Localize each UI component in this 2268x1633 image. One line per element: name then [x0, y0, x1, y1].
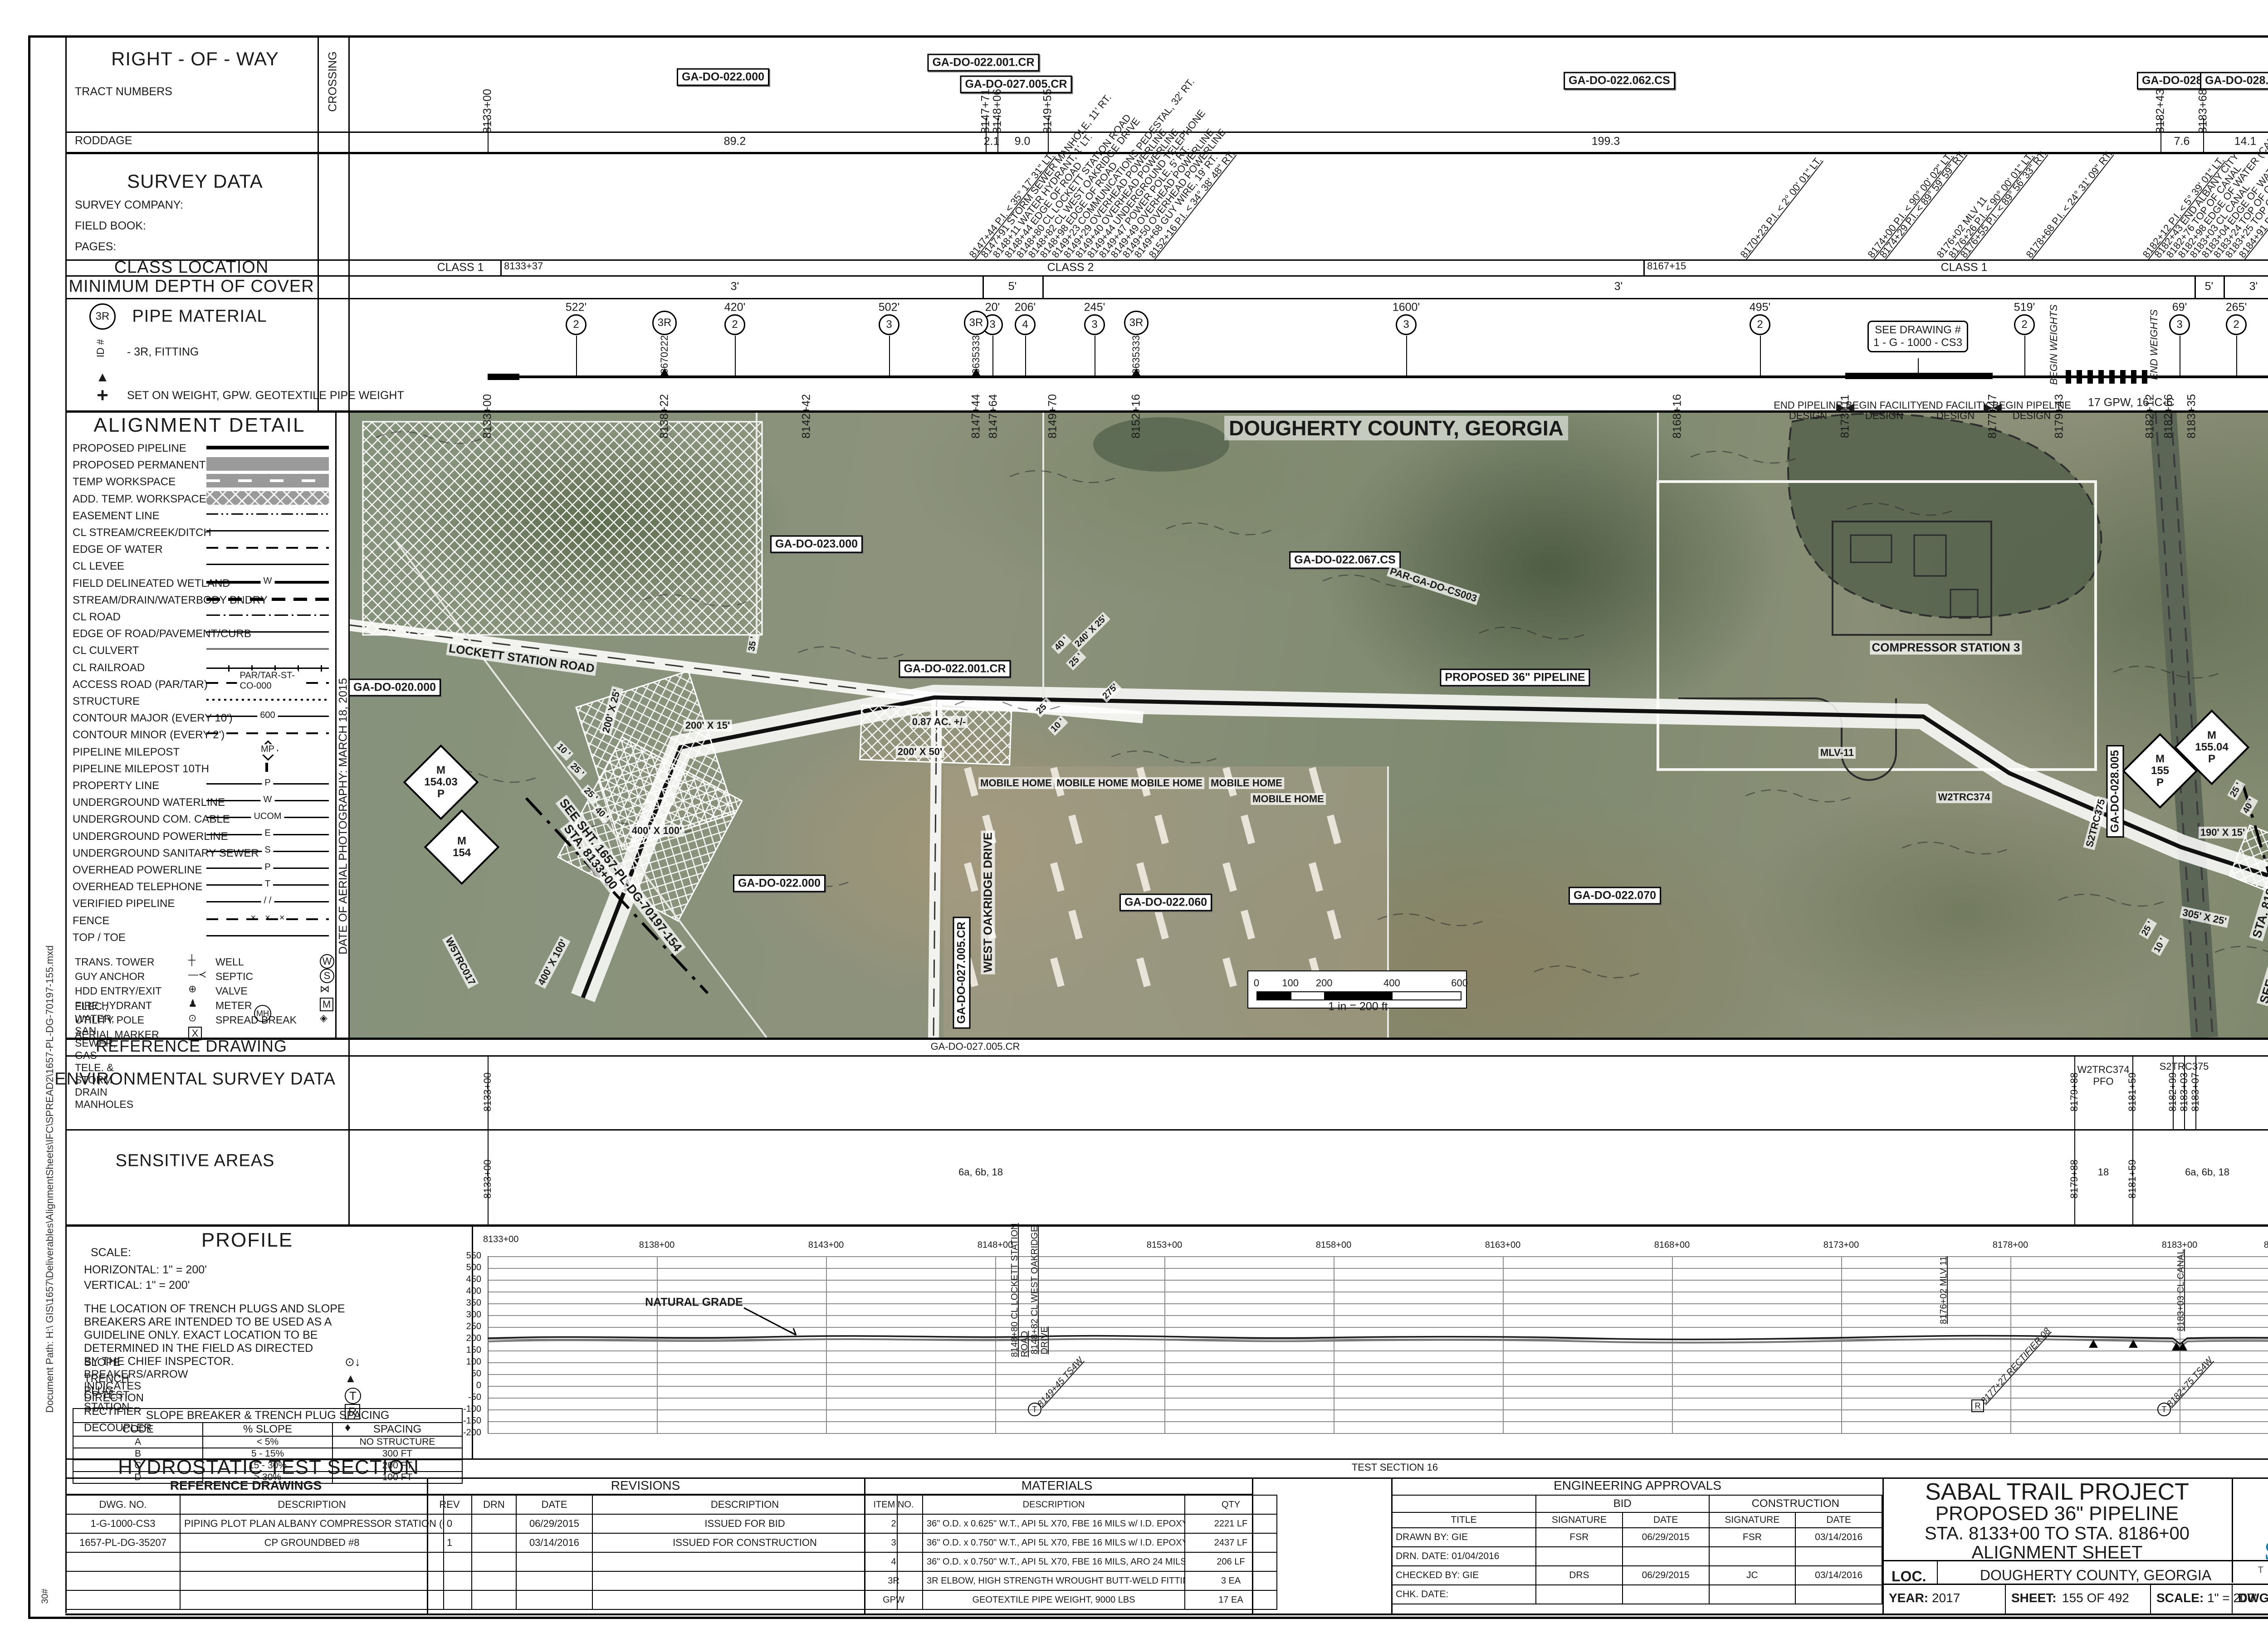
- rule-line: [1882, 1560, 2268, 1561]
- sensitive-area-value: 6a, 6b, 18: [958, 1166, 1003, 1178]
- approvals-cell: FSR: [1536, 1528, 1623, 1547]
- approvals-cell: [1536, 1585, 1623, 1604]
- map-tract-label: GA-DO-020.000: [348, 679, 441, 697]
- rule-line: [488, 1268, 2268, 1269]
- pipe-callout-length: 245': [1084, 301, 1105, 314]
- class-value: CLASS 1: [437, 261, 484, 274]
- reference-drawings-table-cell: CP GROUNDBED #8: [180, 1533, 444, 1552]
- legend-item-label: UNDERGROUND COM. CABLE: [73, 813, 230, 825]
- rule-line: [65, 1458, 2268, 1460]
- loc-value: DOUGHERTY COUNTY, GEORGIA: [1980, 1567, 2211, 1584]
- roddage-value: 199.3: [1592, 135, 1620, 148]
- legend-item-swatch: [206, 564, 329, 565]
- legend-item-swatch: × × ×: [206, 918, 329, 920]
- rule-line: [1025, 336, 1026, 375]
- legend-symbol: GUY ANCHOR—≺: [75, 970, 145, 983]
- project-title-line3: STA. 8133+00 TO STA. 8186+00: [1925, 1524, 2190, 1544]
- pipe-callout-id: 3: [2169, 314, 2190, 335]
- rule-line: [1042, 275, 1044, 298]
- approvals-col-header: SIGNATURE: [1536, 1512, 1623, 1528]
- county-title: DOUGHERTY COUNTY, GEORGIA: [1224, 416, 1568, 440]
- legend-item-swatch: MP: [206, 743, 329, 758]
- legend-item: CL LEVEE: [73, 560, 333, 577]
- materials-table-cell: 3 EA: [1185, 1571, 1277, 1590]
- pipe-station-label: 8149+70: [1046, 394, 1060, 439]
- map-tract-label: GA-DO-023.000: [770, 536, 863, 553]
- legend-item-label: CL CULVERT: [73, 644, 139, 657]
- legend-item: CL CULVERT: [73, 644, 333, 661]
- pipe-station-label: 8152+16: [1130, 394, 1143, 439]
- pipe-fitting-id: 3R: [964, 311, 988, 335]
- reference-drawings-table-cell: 1657-PL-DG-35207: [66, 1533, 180, 1552]
- legend-symbol-label: METER: [215, 999, 252, 1011]
- approvals-cell: [1536, 1547, 1623, 1566]
- legend-item-label: EDGE OF ROAD/PAVEMENT/CURB: [73, 628, 251, 640]
- rule-line: [488, 1398, 2268, 1399]
- legend-item-mark: PAR/TAR-ST-CO-000: [237, 670, 298, 691]
- titleblock-field-value: 2017: [1932, 1591, 1960, 1605]
- legend-item: TOP / TOE: [73, 931, 333, 948]
- spacing-table-cell: < 5%: [203, 1436, 332, 1448]
- legend-item-swatch: [206, 446, 329, 449]
- class-value: CLASS 1: [1941, 261, 1988, 274]
- tract-numbers-label: TRACT NUMBERS: [75, 85, 172, 98]
- rule-line: [2024, 336, 2025, 375]
- alignment-detail-title: ALIGNMENT DETAIL: [94, 414, 306, 437]
- revisions-table-cell: [472, 1533, 516, 1552]
- survey-company-label: SURVEY COMPANY:: [75, 199, 183, 212]
- map-annotation: 0.87 AC. +/-: [910, 716, 968, 728]
- approvals-cell: [1795, 1585, 1882, 1604]
- approvals-col-header: SIGNATURE: [1709, 1512, 1796, 1528]
- spacing-table-header: CODE: [73, 1423, 203, 1436]
- materials-table-cell: 3R: [865, 1571, 923, 1590]
- legend-symbol: METERM: [215, 999, 252, 1012]
- revisions-table-cell: [516, 1571, 592, 1590]
- profile-elevation-left: 100: [466, 1357, 481, 1367]
- profile-elevation-left: 200: [466, 1333, 481, 1344]
- rule-line: [826, 1256, 827, 1433]
- legend-item-label: ADD. TEMP. WORKSPACE: [73, 493, 206, 505]
- profile-station-label: 8158+00: [1316, 1240, 1351, 1251]
- legend-item: PROPOSED PERMANENT EASEMENT: [73, 459, 333, 476]
- legend-item: FENCE× × ×: [73, 915, 333, 931]
- titleblock-field-label: DWG.: [2238, 1591, 2268, 1605]
- legend-symbol-label: SEPTIC: [215, 970, 253, 982]
- profile-station-label: 8138+00: [639, 1240, 675, 1251]
- legend-item-swatch: [206, 547, 329, 549]
- materials-table-cell: 2437 LF: [1185, 1533, 1277, 1552]
- legend-item: STREAM/DRAIN/WATERBODY BNDRY: [73, 594, 333, 611]
- pipe-callout-length: 522': [566, 301, 587, 314]
- roddage-value: 7.6: [2174, 135, 2190, 148]
- design-note-left: END PIPELINE DESIGN: [1774, 400, 1843, 421]
- profile-elevation-left: 0: [476, 1380, 481, 1391]
- legend-item-swatch: [206, 935, 329, 936]
- approvals-cell: 06/29/2015: [1623, 1566, 1709, 1585]
- rule-line: [488, 1421, 2268, 1422]
- approvals-cell: 03/14/2016: [1795, 1528, 1882, 1547]
- legend-symbol-label: TRANS. TOWER: [75, 956, 155, 968]
- rule-line: [488, 1409, 2268, 1410]
- revisions-table-cell: 0: [427, 1514, 472, 1533]
- legend-symbol-glyph: ⊙: [188, 1012, 196, 1024]
- legend-item-mark: W: [261, 576, 275, 586]
- revisions-table-cell: [427, 1552, 472, 1571]
- legend-item: EDGE OF WATER: [73, 543, 333, 560]
- legend-item-swatch: [206, 732, 329, 734]
- rule-line: [488, 375, 2268, 378]
- legend-item: UNDERGROUND COM. CABLEUCOM: [73, 813, 333, 830]
- map-tract-label: GA-DO-022.000: [733, 875, 826, 892]
- legend-symbol: VALVE⋈: [215, 985, 248, 997]
- pipe-3r-symbol: 3R: [89, 303, 116, 330]
- scalebar-segment: [1290, 991, 1326, 1000]
- begin-weights-label: BEGIN WEIGHTS: [2048, 304, 2060, 385]
- scalebar-segment: [1256, 991, 1292, 1000]
- revisions-table-cell: [592, 1552, 897, 1571]
- legend-item-swatch: W: [206, 581, 329, 584]
- pipe-station-label: 8182+12: [2144, 394, 2157, 439]
- legend-item-swatch: [206, 631, 329, 633]
- revisions-table-cell: DESCRIPTION: [592, 1495, 897, 1514]
- map-tract-label: GA-DO-022.001.CR: [899, 660, 1011, 678]
- tract-label: GA-DO-028.020: [2200, 72, 2268, 90]
- revisions-table-cell: [516, 1552, 592, 1571]
- profile-station-label: 8168+00: [1654, 1240, 1690, 1251]
- reference-drawings-table-cell: 1-G-1000-CS3: [66, 1514, 180, 1533]
- tract-label: GA-DO-022.062.CS: [1564, 72, 1675, 90]
- reference-drawings-table-cell: DWG. NO.: [66, 1495, 180, 1514]
- legend-item: PIPELINE MILEPOSTMP: [73, 746, 333, 763]
- rule-line: [65, 1129, 2268, 1131]
- pipe-station-label: 8177+47: [1986, 394, 1999, 439]
- reference-drawings-table: DWG. NO.DESCRIPTION1-G-1000-CS3PIPING PL…: [65, 1495, 444, 1610]
- legend-item-label: CL STREAM/CREEK/DITCH: [73, 526, 211, 539]
- profile-symbol-glyph: ▲: [345, 1371, 357, 1385]
- rule-line: [1672, 1256, 1673, 1433]
- map-tract-label-vertical: GA-DO-028.005: [2107, 745, 2124, 838]
- rule-line: [1882, 1477, 1884, 1614]
- map-tract-label: GA-DO-022.070: [1569, 887, 1661, 905]
- legend-item-swatch: / /: [206, 901, 329, 902]
- pages-label: PAGES:: [75, 240, 116, 253]
- reference-drawings-table-cell: DESCRIPTION: [180, 1495, 444, 1514]
- legend-item-label: PIPELINE MILEPOST: [73, 746, 180, 758]
- pipe-fitting-triangle: [1132, 368, 1141, 376]
- map-tract-label: GA-DO-022.060: [1119, 894, 1212, 912]
- rule-line: [1334, 1256, 1334, 1433]
- legend-symbol-glyph: ⋈: [320, 983, 330, 995]
- milepost-label: M155P: [2151, 753, 2169, 789]
- legend-item-mark: S: [262, 845, 273, 855]
- materials-table-cell: 4: [865, 1552, 923, 1571]
- rule-line: [488, 374, 519, 380]
- rule-line: [864, 1477, 865, 1614]
- map-tract-label-vertical: GA-DO-027.005.CR: [953, 916, 971, 1029]
- legend-item-swatch: [206, 699, 329, 701]
- logo-sub: T R A N S M I S S I O N: [2258, 1565, 2268, 1576]
- profile-elevation-left: -200: [463, 1428, 481, 1438]
- pipe-station-label: 8138+22: [658, 394, 671, 439]
- legend-item-label: PIPELINE MILEPOST 10TH: [73, 763, 209, 775]
- spacing-table-title: SLOPE BREAKER & TRENCH PLUG SPACING: [73, 1409, 462, 1423]
- profile-station-label: 8153+00: [1147, 1240, 1182, 1251]
- revisions-table-cell: [472, 1571, 516, 1590]
- legend-symbol: TRANS. TOWER┼: [75, 956, 155, 968]
- rule-line: [65, 275, 2268, 277]
- map-annotation: MOBILE HOME: [1251, 793, 1326, 805]
- class-boundary-station: 8133+37: [504, 260, 543, 272]
- rule-line: [2132, 1055, 2133, 1129]
- reference-drawings-table-cell: [66, 1552, 180, 1571]
- roddage-value: 89.2: [724, 135, 746, 148]
- class-value: CLASS 2: [1047, 261, 1094, 274]
- revisions-table: REVDRNDATEDESCRIPTION006/29/2015ISSUED F…: [427, 1495, 898, 1610]
- rule-line: [1252, 1477, 1253, 1614]
- materials-table-cell: ITEM NO.: [865, 1495, 923, 1514]
- legend-symbol: HDD ENTRY/EXIT⊕: [75, 985, 161, 997]
- revisions-table-cell: [592, 1571, 897, 1590]
- pipe-3r-fitting-label: - 3R, FITTING: [127, 346, 199, 359]
- pipe-callout-length: 265': [2226, 301, 2247, 314]
- rule-line: [488, 1315, 2268, 1316]
- materials-table-cell: 3R ELBOW, HIGH STRENGTH WROUGHT BUTT-WEL…: [923, 1571, 1185, 1590]
- legend-item-mark: T: [262, 879, 273, 889]
- approvals-title: ENGINEERING APPROVALS: [1554, 1478, 1721, 1493]
- materials-title: MATERIALS: [1022, 1478, 1093, 1493]
- legend-item: CONTOUR MAJOR (EVERY 10')600: [73, 712, 333, 729]
- revisions-table-cell: DRN: [472, 1495, 516, 1514]
- materials-table-cell: 36" O.D. x 0.750" W.T., API 5L X70, FBE …: [923, 1533, 1185, 1552]
- legend-item: CL STREAM/CREEK/DITCH: [73, 526, 333, 543]
- map-annotation: 200' X 50': [896, 746, 944, 758]
- rule-line: [488, 1350, 2268, 1351]
- map-linework: [348, 410, 2268, 1038]
- pipe-station-label: 8147+44: [970, 394, 983, 439]
- approvals-cell: JC: [1709, 1566, 1796, 1585]
- legend-item: STRUCTURE: [73, 695, 333, 712]
- rule-line: [2150, 1584, 2151, 1614]
- legend-symbol-glyph: ┼: [188, 954, 196, 966]
- legend-item-swatch: PAR/TAR-ST-CO-000: [206, 682, 329, 684]
- legend-item-swatch: [206, 474, 329, 487]
- legend-item-label: CL LEVEE: [73, 560, 124, 572]
- materials-table-cell: 36" O.D. x 0.625" W.T., API 5L X70, FBE …: [923, 1514, 1185, 1533]
- sensitive-area-value: 18: [2098, 1166, 2109, 1178]
- legend-item-swatch: E: [206, 834, 329, 835]
- materials-table-cell: 36" O.D. x 0.750" W.T., API 5L X70, FBE …: [923, 1552, 1185, 1571]
- profile-elevation-left: 50: [471, 1369, 481, 1379]
- rule-line: [2005, 1584, 2006, 1614]
- rule-line: [65, 35, 67, 1613]
- profile-elevation-left: -50: [468, 1392, 481, 1403]
- profile-v-annotation: 8148+80 CL LOCKETT STATION ROAD: [1010, 1223, 1030, 1357]
- legend-item-swatch: UCOM: [206, 817, 329, 818]
- rule-line: [318, 35, 319, 410]
- min-depth-value: 3': [1614, 280, 1623, 293]
- profile-annotation-glyph: T: [2157, 1403, 2171, 1416]
- rule-line: [65, 1477, 2268, 1479]
- map-annotation: MLV-11: [1818, 747, 1856, 759]
- rule-line: [2232, 1584, 2233, 1614]
- rule-line: [488, 1055, 489, 1129]
- legend-item-label: EDGE OF WATER: [73, 543, 163, 556]
- tract-label: GA-DO-022.000: [677, 68, 769, 86]
- rule-line: [488, 1280, 2268, 1281]
- profile-scale-v: VERTICAL: 1" = 200': [84, 1279, 190, 1292]
- legend-item: PROPERTY LINEP: [73, 780, 333, 796]
- loc-label: LOC.: [1892, 1568, 1926, 1585]
- profile-elevation-left: 450: [466, 1274, 481, 1285]
- legend-item: TEMP WORKSPACE: [73, 476, 333, 492]
- legend-item-label: UNDERGROUND SANITARY SEWER: [73, 847, 259, 859]
- profile-scale-h: HORIZONTAL: 1" = 200': [84, 1263, 207, 1277]
- legend-symbol-glyph: ⊕: [188, 983, 196, 995]
- legend-symbol: SEPTICS: [215, 970, 253, 983]
- pipe-callout-length: 420': [724, 301, 745, 314]
- rule-line: [576, 336, 577, 375]
- min-depth-value: 3': [731, 280, 739, 293]
- legend-symbol-label: HDD ENTRY/EXIT: [75, 985, 161, 997]
- profile-elevation-left: 250: [466, 1321, 481, 1332]
- approvals-cell: [1795, 1547, 1882, 1566]
- rule-line: [1643, 259, 1645, 275]
- pipe-callout-id: 2: [2226, 314, 2247, 335]
- legend-item-label: TEMP WORKSPACE: [73, 476, 176, 488]
- map-annotation: 190' X 15': [2199, 827, 2247, 838]
- roddage-value: 9.0: [1015, 135, 1031, 148]
- materials-table: ITEM NO.DESCRIPTIONQTY236" O.D. x 0.625"…: [864, 1495, 1277, 1610]
- revisions-table-cell: [516, 1590, 592, 1609]
- scalebar-segment: [1324, 991, 1393, 1000]
- revisions-table-cell: REV: [427, 1495, 472, 1514]
- map-annotation: 400' X 100': [630, 825, 684, 837]
- rule-line: [488, 118, 489, 152]
- legend-item-label: ACCESS ROAD (PAR/TAR): [73, 678, 208, 691]
- rule-line: [488, 1256, 2268, 1257]
- revisions-title: REVISIONS: [611, 1478, 680, 1493]
- rule-line: [2203, 118, 2204, 152]
- pipe-callout-length: 206': [1015, 301, 1036, 314]
- map-annotation: WEST OAKRIDGE DRIVE: [981, 830, 995, 974]
- tract-label: GA-DO-027.005.CR: [960, 76, 1072, 93]
- materials-table-cell: DESCRIPTION: [923, 1495, 1185, 1514]
- spacing-table-header: SPACING: [332, 1423, 462, 1436]
- min-depth-value: 5': [1008, 280, 1017, 293]
- pipe-callout-length: 1600': [1393, 301, 1420, 314]
- materials-table-cell: QTY: [1185, 1495, 1277, 1514]
- titleblock-field-label: SCALE:: [2156, 1591, 2204, 1605]
- profile-elevation-left: 150: [466, 1345, 481, 1355]
- legend-item-swatch: 600: [206, 716, 329, 717]
- rule-line: [65, 1614, 2268, 1615]
- rule-line: [65, 298, 2268, 299]
- materials-table-cell: 2221 LF: [1185, 1514, 1277, 1533]
- legend-item-label: UNDERGROUND POWERLINE: [73, 830, 228, 843]
- legend-item-mark: × × ×: [248, 913, 287, 923]
- legend-item-swatch: [206, 513, 329, 515]
- titleblock-field-label: SHEET:: [2011, 1591, 2057, 1605]
- rule-line: [1882, 1584, 2268, 1585]
- pipe-fitting-id: 3R: [1124, 311, 1149, 335]
- legend-item: OVERHEAD POWERLINEP: [73, 864, 333, 881]
- rule-line: [65, 1494, 1252, 1495]
- project-title-line2: PROPOSED 36" PIPELINE: [1936, 1502, 2179, 1525]
- legend-item: VERIFIED PIPELINE/ /: [73, 897, 333, 914]
- rule-line: [488, 1362, 2268, 1363]
- map-annotation: MOBILE HOME: [978, 777, 1054, 789]
- rule-line: [2109, 370, 2115, 384]
- revisions-table-cell: DATE: [516, 1495, 592, 1514]
- legend-symbol-glyph: W: [320, 954, 334, 969]
- profile-station-label: 8143+00: [808, 1240, 844, 1251]
- legend-symbol-glyph: ◈: [320, 1012, 327, 1024]
- legend-item-label: VERIFIED PIPELINE: [73, 897, 175, 910]
- roddage-label: RODDAGE: [75, 134, 132, 147]
- document-path: Document Path: H:\ GIS\1657\Deliverables…: [44, 946, 56, 1413]
- legend-item: PIPELINE MILEPOST 10TH: [73, 763, 333, 780]
- spacing-table-cell: A: [73, 1436, 203, 1448]
- profile-left-station: 8133+00: [483, 1234, 518, 1245]
- natural-grade-label: NATURAL GRADE: [645, 1296, 743, 1309]
- rule-line: [1391, 1477, 1393, 1614]
- project-title-line1: SABAL TRAIL PROJECT: [1925, 1478, 2189, 1506]
- approvals-cell: DRAWN BY: GIE: [1392, 1528, 1536, 1547]
- rule-line: [1048, 118, 1049, 152]
- rule-line: [2160, 118, 2161, 152]
- rule-line: [992, 336, 993, 375]
- row-title-pipe-material: PIPE MATERIAL: [132, 307, 267, 327]
- materials-table-cell: 3: [865, 1533, 923, 1552]
- approvals-cell: DRN. DATE: 01/04/2016: [1392, 1547, 1536, 1566]
- crossing-label: CROSSING: [327, 51, 340, 112]
- rule-line: [2180, 336, 2180, 375]
- approvals-cell: [1709, 1585, 1796, 1604]
- profile-elevation-left: 550: [466, 1251, 481, 1261]
- rule-line: [488, 1292, 2268, 1292]
- spacing-table-cell: NO STRUCTURE: [332, 1436, 462, 1448]
- rule-line: [2236, 336, 2237, 375]
- rule-line: [65, 1038, 2268, 1040]
- legend-item-swatch: P: [206, 868, 329, 869]
- rule-line: [500, 259, 502, 275]
- legend-item-swatch: [206, 614, 329, 616]
- rule-line: [1406, 336, 1407, 375]
- field-book-label: FIELD BOOK:: [75, 219, 146, 233]
- materials-table-cell: GPW: [865, 1590, 923, 1609]
- env-feature-label: W2TRC374 PFO: [2077, 1064, 2130, 1087]
- titleblock-field-value: 155 OF 492: [2062, 1591, 2129, 1605]
- pipe-callout-id: 2: [566, 314, 587, 335]
- pipe-station-label: 8133+00: [481, 394, 494, 439]
- hydrostatic-value: TEST SECTION 16: [1352, 1462, 1438, 1473]
- map-annotation: COMPRESSOR STATION 3: [1870, 641, 2022, 655]
- rule-line: [348, 35, 350, 1224]
- map-annotation: W2TRC374: [1936, 791, 1992, 803]
- materials-table-cell: 17 EA: [1185, 1590, 1277, 1609]
- profile-station-label: 8178+00: [1993, 1240, 2028, 1251]
- materials-table-cell: GEOTEXTILE PIPE WEIGHT, 9000 LBS: [923, 1590, 1185, 1609]
- profile-elevation-left: 500: [466, 1263, 481, 1273]
- rule-line: [488, 1129, 489, 1224]
- pipe-fitting-id: 3R: [652, 311, 677, 335]
- map-area: [348, 410, 2268, 1038]
- legend-item: ADD. TEMP. WORKSPACE: [73, 493, 333, 510]
- row-title-survey-data: SURVEY DATA: [127, 171, 263, 192]
- approvals-col-header: TITLE: [1392, 1512, 1536, 1528]
- rule-line: [2077, 370, 2082, 384]
